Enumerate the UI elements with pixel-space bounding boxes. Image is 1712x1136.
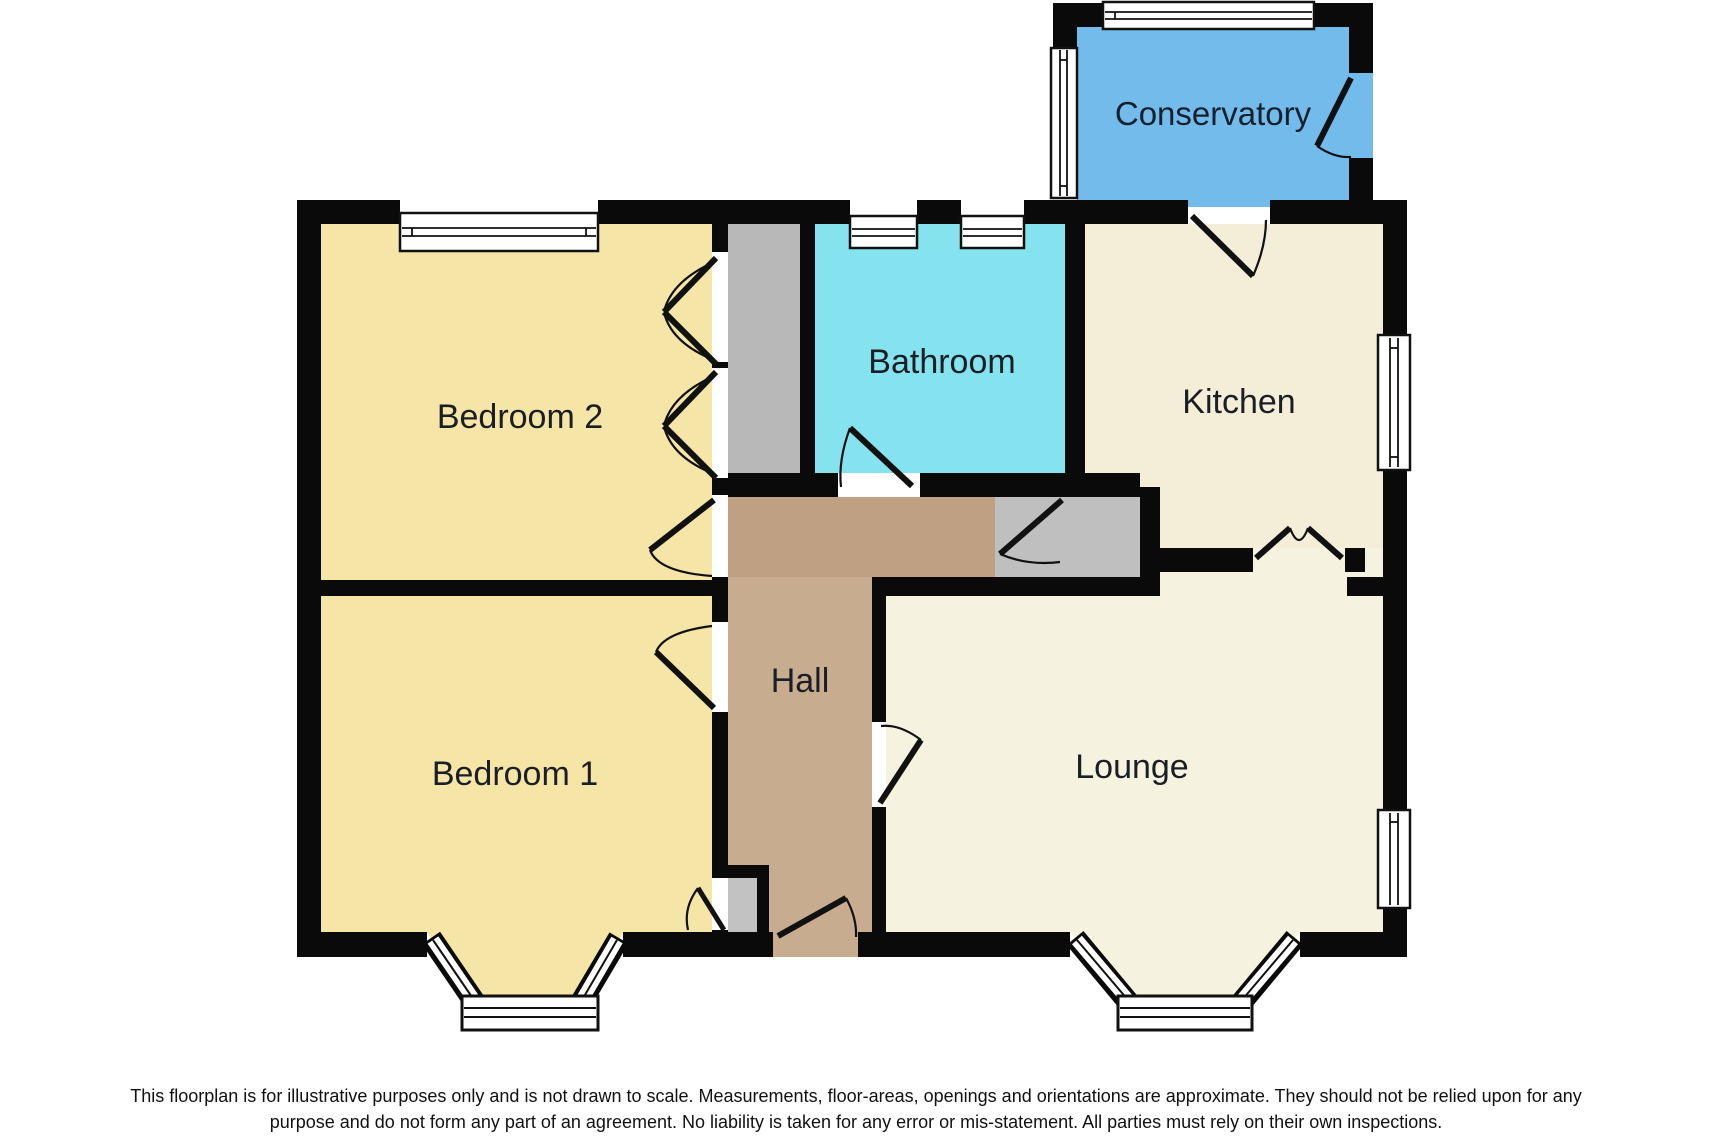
disclaimer-line-1: This floorplan is for illustrative purpo… (0, 1086, 1712, 1107)
wall (872, 577, 1160, 596)
wall (872, 807, 886, 932)
wall (623, 932, 773, 957)
wall (1053, 3, 1103, 27)
room-label-bedroom1: Bedroom 1 (432, 755, 598, 793)
wall (1140, 487, 1160, 596)
wall (1347, 577, 1383, 596)
wall (712, 930, 728, 932)
room-label-hall: Hall (771, 662, 830, 700)
wall (598, 200, 850, 224)
bathroom-window-right (961, 216, 1024, 248)
wall (297, 200, 321, 957)
wall (800, 224, 815, 477)
room-floors (321, 27, 1383, 1000)
bedroom2-window (400, 213, 598, 251)
wall (1345, 548, 1365, 572)
wall (321, 580, 728, 596)
wall (757, 878, 769, 932)
wall (858, 932, 1070, 957)
wall (1065, 224, 1085, 473)
wall (1383, 200, 1407, 335)
front-door-threshold (773, 932, 858, 957)
room-label-bathroom: Bathroom (868, 343, 1015, 381)
wall (1349, 158, 1373, 200)
wall (728, 473, 838, 497)
storage-strip (728, 224, 800, 477)
room-label-bedroom2: Bedroom 2 (437, 398, 603, 436)
wall (1314, 3, 1373, 27)
bathroom-window-left (850, 216, 917, 248)
wall (712, 224, 728, 252)
wall (1383, 908, 1407, 957)
wall (712, 478, 728, 495)
wall (712, 712, 728, 878)
hall-upper-corridor (728, 497, 995, 577)
conservatory-door-panel (1349, 73, 1373, 158)
room-label-conservatory: Conservatory (1115, 95, 1312, 132)
disclaimer-line-2: purpose and do not form any part of an a… (0, 1112, 1712, 1133)
room-label-kitchen: Kitchen (1182, 383, 1295, 421)
wall (872, 596, 886, 722)
wall (1349, 27, 1373, 73)
lounge-window (1378, 810, 1410, 908)
wall (917, 200, 961, 224)
kitchen-window (1378, 335, 1410, 470)
hall-alcove (728, 878, 757, 932)
floorplan-canvas: Conservatory Bedroom 2 Bathroom Kitchen … (0, 0, 1712, 1136)
room-label-lounge: Lounge (1075, 748, 1188, 786)
wall (712, 865, 769, 878)
conservatory-top-window (1103, 2, 1314, 29)
conservatory-left-window (1051, 48, 1077, 198)
wall (1383, 470, 1407, 810)
wall (920, 473, 1140, 497)
floorplan-page: Conservatory Bedroom 2 Bathroom Kitchen … (0, 0, 1712, 1136)
wall (1053, 27, 1077, 48)
wall (1024, 200, 1188, 224)
